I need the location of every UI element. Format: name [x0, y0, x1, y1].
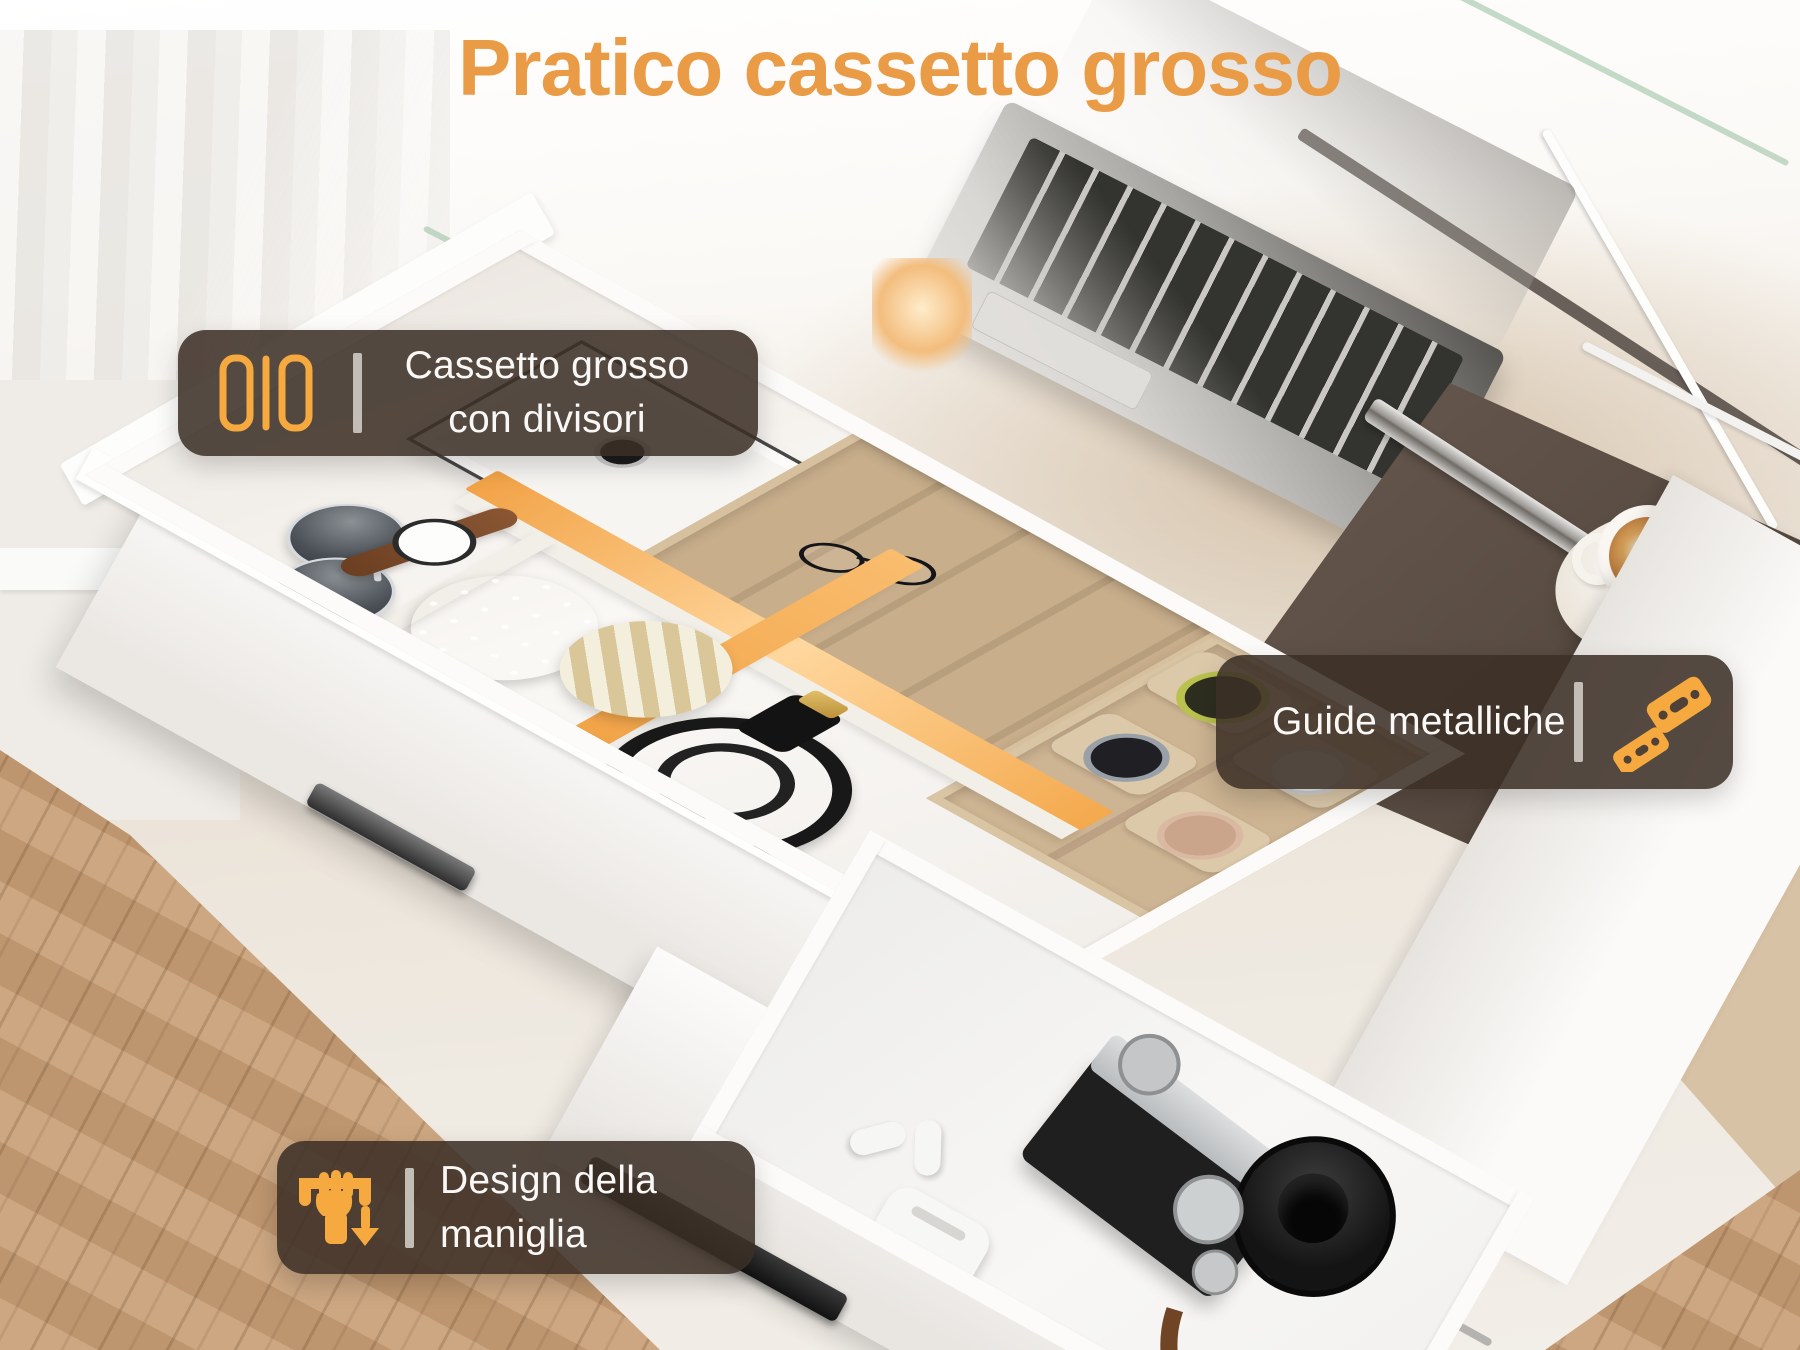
- callout-divider-bar: [405, 1168, 414, 1248]
- product-marketing-image: Cassetto grosso con divisori Guide metal…: [0, 0, 1800, 1350]
- callout-handle-label: Design della maniglia: [414, 1154, 755, 1262]
- earbud: [847, 1119, 908, 1158]
- callout-dividers-label: Cassetto grosso con divisori: [362, 339, 758, 447]
- scented-candle: [872, 258, 972, 378]
- page-title: Pratico cassetto grosso: [0, 22, 1800, 114]
- callout-divider-bar: [1574, 682, 1583, 762]
- callout-dividers: Cassetto grosso con divisori: [178, 330, 758, 456]
- hand-grip-icon: [277, 1164, 405, 1252]
- callout-handle: Design della maniglia: [277, 1141, 755, 1274]
- callout-rails: Guide metalliche: [1216, 655, 1733, 789]
- drawer-dividers-icon: [178, 351, 353, 435]
- drawer-slide-icon: [1583, 672, 1733, 772]
- callout-divider-bar: [353, 353, 362, 433]
- callout-rails-label: Guide metalliche: [1216, 695, 1574, 749]
- earbud: [914, 1120, 942, 1176]
